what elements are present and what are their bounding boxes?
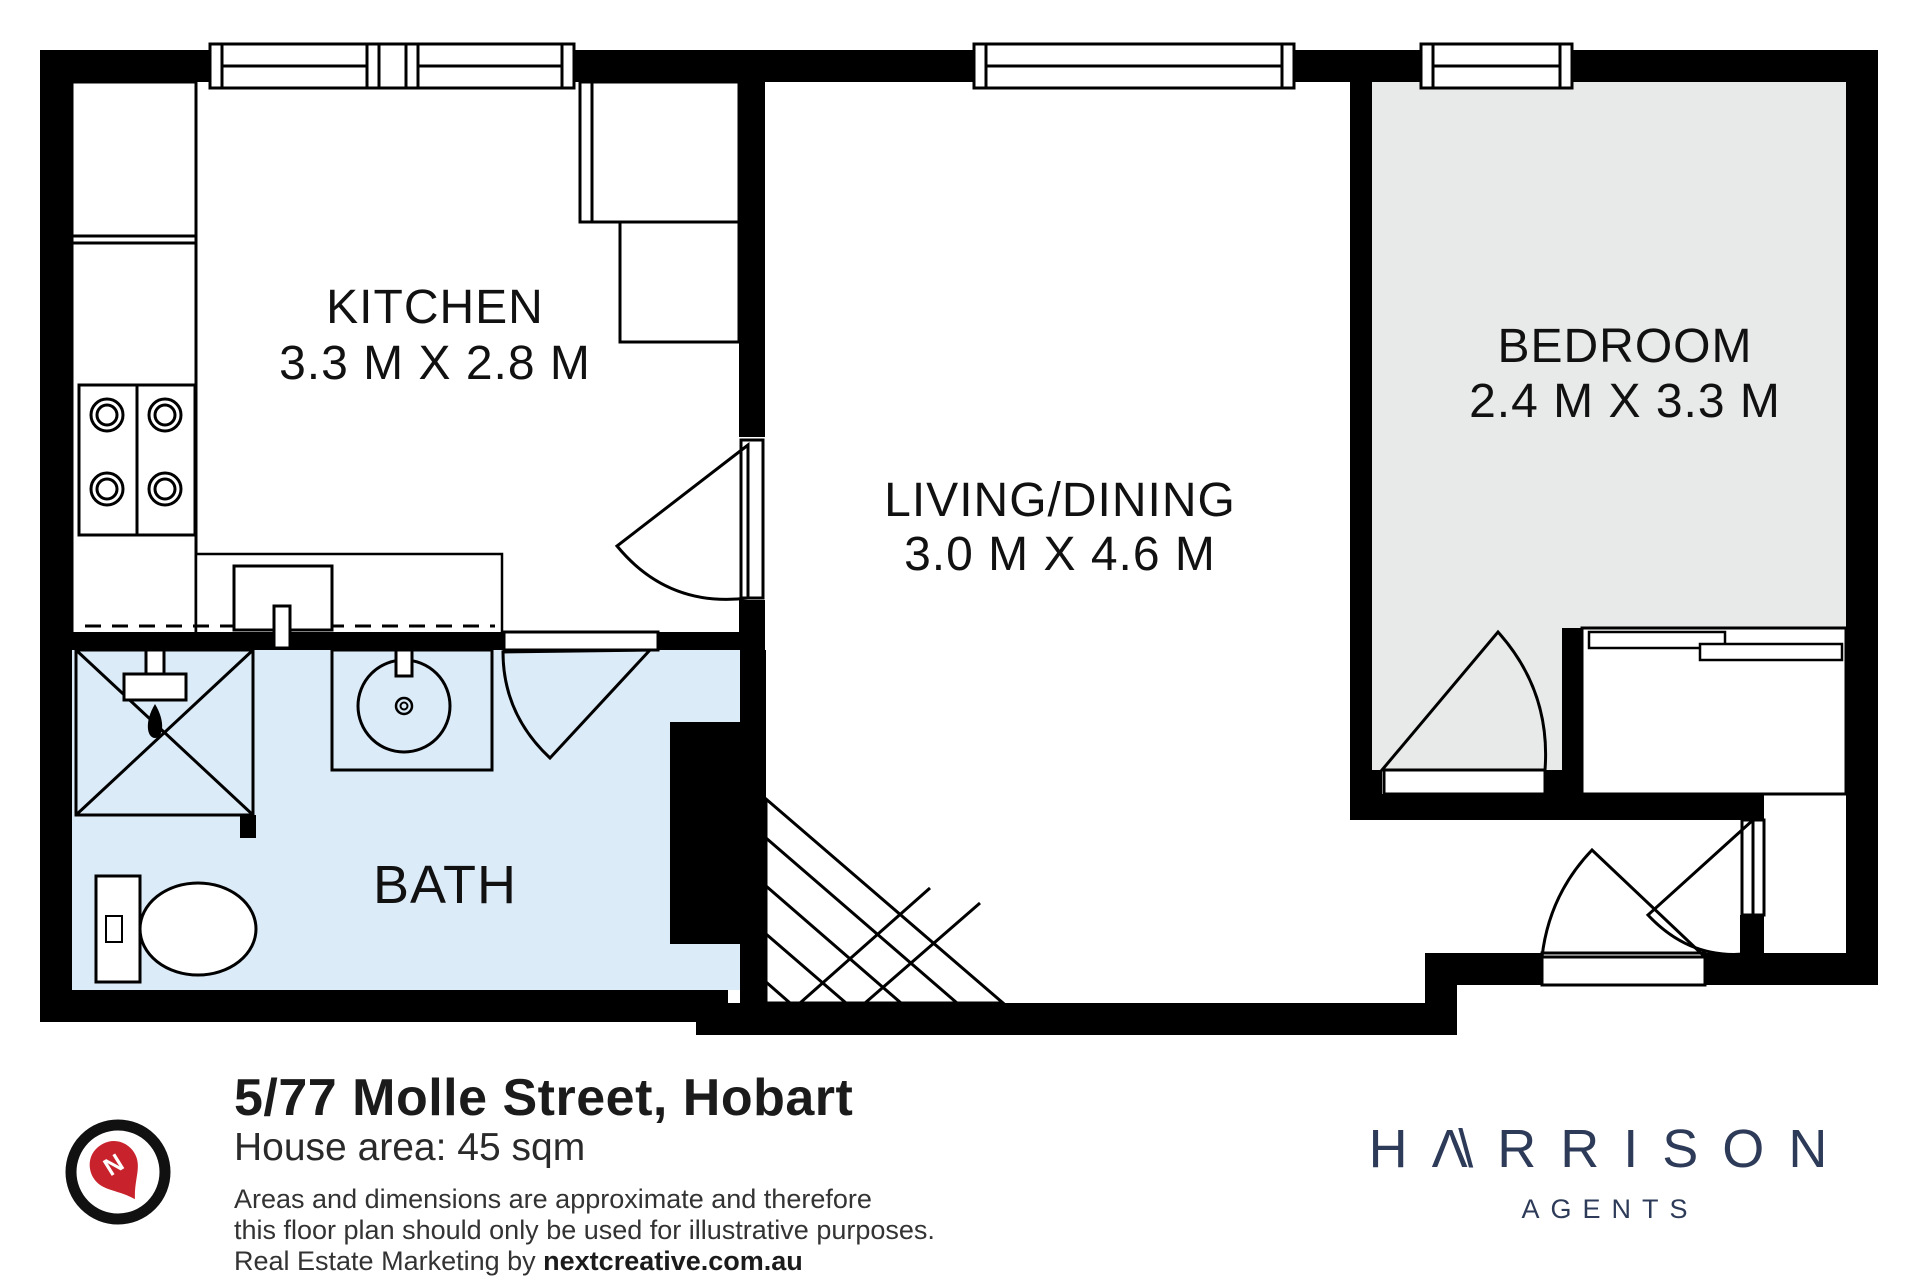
stove-icon (79, 385, 195, 535)
wall-bottom-middle (712, 1003, 1457, 1035)
living-label: LIVING/DINING (884, 474, 1236, 527)
wall-bath-east (740, 650, 766, 1003)
logo-a-slash: \ (1458, 1118, 1497, 1180)
chimney-block (670, 722, 740, 944)
wall-right (1846, 50, 1878, 985)
wall-bottom-right-a (1457, 953, 1542, 985)
window-kitchen-pair (210, 44, 574, 88)
living-dims: 3.0 M X 4.6 M (904, 528, 1216, 581)
bedroom-label: BEDROOM (1497, 320, 1752, 373)
wall-bath-top-b (658, 632, 740, 650)
kitchen-label: KITCHEN (326, 281, 544, 334)
wall-bottom-right-b (1705, 953, 1878, 985)
wall-bottom-step2 (1425, 953, 1457, 1035)
logo-rest: RRISON (1497, 1119, 1851, 1179)
bath-label: BATH (373, 855, 517, 915)
logo-h: H (1369, 1119, 1432, 1179)
wall-bedroom-south-band (1350, 794, 1764, 820)
disclaimer-line-1: Areas and dimensions are approximate and… (234, 1184, 935, 1215)
door-entry (1542, 850, 1705, 985)
toilet-icon (96, 876, 256, 982)
kitchen-cabinets-right (580, 82, 739, 342)
kitchen-dims: 3.3 M X 2.8 M (279, 337, 591, 390)
logo-tagline: AGENTS (1330, 1194, 1890, 1225)
shower-wall-stub (240, 815, 256, 838)
disclaimer-text: Areas and dimensions are approximate and… (234, 1184, 935, 1246)
marketing-credit: Real Estate Marketing by nextcreative.co… (234, 1246, 803, 1277)
compass-icon: N (71, 1125, 165, 1219)
window-bedroom (1421, 44, 1572, 88)
wall-bedroom-south-a (1350, 770, 1382, 794)
wall-bottom-bath (40, 990, 712, 1022)
wardrobe (1582, 628, 1846, 794)
wall-bedroom-west (1350, 82, 1372, 770)
bedroom-dims: 2.4 M X 3.3 M (1469, 375, 1781, 428)
wall-kitchen-living-upper (739, 82, 765, 437)
kitchen-counter-left (72, 82, 196, 640)
logo-wordmark: HΛ\RRISON (1330, 1118, 1890, 1180)
marketing-brand: nextcreative.com.au (543, 1246, 803, 1276)
floorplan-page: KITCHEN 3.3 M X 2.8 M LIVING/DINING 3.0 … (0, 0, 1920, 1280)
marketing-prefix: Real Estate Marketing by (234, 1246, 543, 1276)
wall-kitchen-living-lower (739, 600, 765, 650)
stairs (766, 799, 1003, 1003)
window-living (974, 44, 1294, 88)
wall-closet-west (1562, 628, 1582, 794)
address-title: 5/77 Molle Street, Hobart (234, 1068, 853, 1128)
wall-left (40, 50, 72, 1022)
kitchen-sink-tap-icon (274, 606, 290, 648)
disclaimer-line-2: this floor plan should only be used for … (234, 1215, 935, 1246)
door-kitchen (617, 440, 763, 599)
house-area-label: House area: 45 sqm (234, 1126, 585, 1170)
harrison-agents-logo: HΛ\RRISON AGENTS (1330, 1118, 1890, 1225)
